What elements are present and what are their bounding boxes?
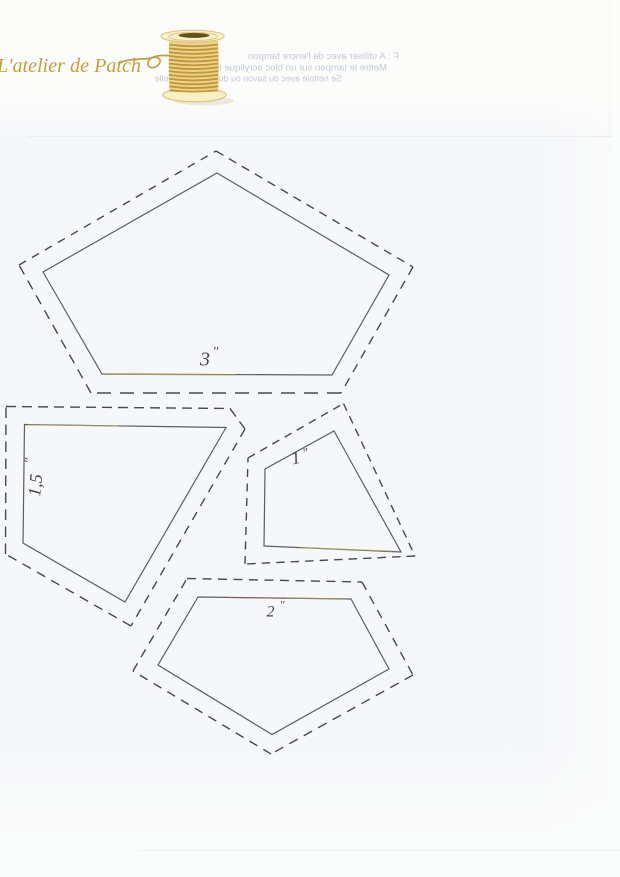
svg-text:L'atelier de Patch: L'atelier de Patch	[0, 55, 141, 77]
svg-text:″: ″	[213, 345, 219, 360]
svg-text:1,5: 1,5	[24, 473, 46, 497]
svg-text:F : A utiliser avec de l'encre: F : A utiliser avec de l'encre tampon	[248, 51, 399, 62]
svg-text:2: 2	[267, 604, 275, 621]
svg-text:3: 3	[199, 349, 210, 371]
